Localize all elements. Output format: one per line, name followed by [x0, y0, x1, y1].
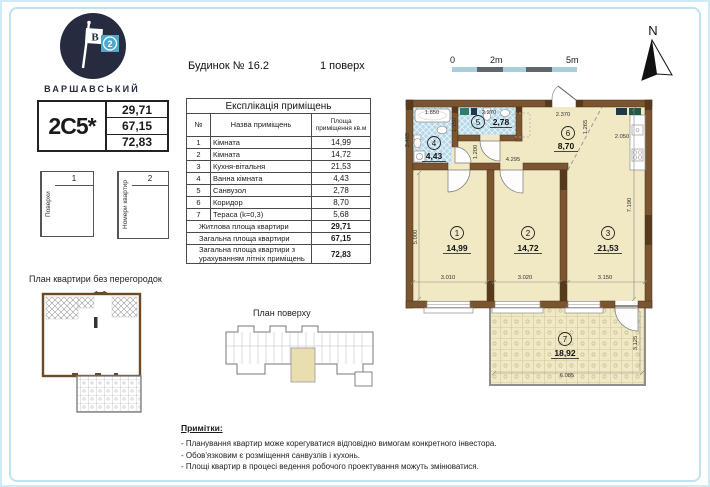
bath-toilet [414, 139, 421, 148]
kitchen-counter [630, 115, 645, 170]
dim-2370: 2.370 [556, 112, 571, 118]
room-6-area: 8,70 [558, 141, 575, 151]
wc-appliance-green [460, 108, 469, 115]
dim-3125: 3.125 [633, 336, 639, 351]
scale-label-5m: 5m [566, 55, 579, 65]
summary-row-total: Загальна площа квартири67,15 [187, 233, 371, 245]
dim-1150: 1.150 [452, 118, 458, 133]
apartment-numbers-card-label: Номери квартир [118, 172, 132, 238]
dim-7190: 7.190 [627, 198, 633, 213]
room-5-number: 5 [476, 118, 481, 127]
apartment-total-with-summer: 72,83 [107, 135, 167, 150]
room-2-area: 14,72 [517, 243, 539, 253]
dim-1200: 1.200 [473, 145, 479, 160]
dim-3010: 3.010 [441, 275, 456, 281]
apartment-numbers-card: Номери квартир 2 [117, 171, 169, 239]
explication-table: Експлікація приміщень № Назва приміщень … [186, 98, 371, 264]
room-7-area: 18,92 [554, 348, 576, 358]
notes-title: Примітки: [181, 423, 601, 433]
kitchen-appliance-green [629, 108, 641, 115]
table-row: 6Коридор8,70 [187, 197, 371, 209]
windows [424, 302, 603, 314]
room-3-area: 21,53 [597, 243, 619, 253]
kitchen-appliance-navy [616, 108, 627, 115]
dim-2050: 2.050 [615, 134, 630, 140]
room-1-number: 1 [455, 229, 460, 238]
apartment-code: 2C5* [39, 102, 107, 150]
brand-name: ВАРШАВСЬКИЙ [34, 84, 150, 94]
room-3-number: 3 [606, 229, 611, 238]
col-header-name: Назва приміщень [211, 114, 312, 137]
apartment-card: 2C5* 29,71 67,15 72,83 [37, 100, 169, 152]
column [94, 317, 98, 328]
apartment-total-area: 67,15 [107, 118, 167, 134]
room-7-number: 7 [563, 335, 568, 344]
table-row: 4Ванна кімната4,43 [187, 173, 371, 185]
dim-6085: 6.085 [560, 373, 575, 379]
wc-sink [501, 110, 510, 117]
table-row: 1Кімната14,99 [187, 137, 371, 149]
room-5-area: 2,78 [493, 117, 510, 127]
dim-1265: 1.265 [583, 120, 589, 135]
dim-5000: 5.000 [413, 230, 419, 245]
scale-bar: 0 2m 5m [448, 55, 588, 72]
dim-3020: 3.020 [518, 275, 533, 281]
terrace-outline [77, 376, 141, 412]
room-6-number: 6 [566, 129, 571, 138]
scale-label-0: 0 [450, 55, 455, 65]
dim-4295: 4.295 [506, 157, 521, 163]
apartment-numbers-card-value: 2 [132, 172, 168, 186]
table-row: 3Кухня-вітальня21,53 [187, 161, 371, 173]
floors-card: Поверхи 1 [40, 171, 94, 237]
scale-bar-rule [452, 67, 577, 72]
table-row: 5Санвузол2,78 [187, 185, 371, 197]
highlighted-apartment [291, 348, 315, 382]
building-title: Будинок № 16.2 [188, 60, 269, 72]
note-item: - Площі квартир в процесі ведення робочо… [181, 461, 601, 473]
wc-appliance-navy [471, 108, 477, 115]
summary-row-total-summer: Загальна площа квартири з урахуванням лі… [187, 245, 371, 264]
dim-1850: 1.850 [425, 110, 440, 116]
logo-number-2: 2 [107, 39, 112, 49]
floor-title: 1 поверх [320, 60, 365, 72]
floor-plan-title: План поверху [253, 308, 311, 318]
brand-logo: B 2 [52, 10, 134, 86]
notes-block: Примітки: - Планування квартир може коре… [181, 423, 601, 473]
table-row: 2Кімната14,72 [187, 149, 371, 161]
floors-card-label: Поверхи [41, 172, 55, 236]
floors-card-value: 1 [55, 172, 93, 186]
col-header-num: № [187, 114, 211, 137]
table-row: 7Тераса (k=0,3)5,68 [187, 209, 371, 221]
entrance-notch [95, 291, 106, 293]
entrance-door-leaf [558, 86, 576, 100]
room-4-area: 4,43 [426, 151, 443, 161]
apartment-living-area: 29,71 [107, 102, 167, 118]
dim-2270: 2.270 [482, 110, 497, 116]
note-item: - Планування квартир може корегуватися в… [181, 438, 601, 450]
entrance-door-arc [552, 86, 558, 100]
washing-machine [414, 151, 425, 162]
north-arrow: N [638, 20, 680, 86]
logo-letter-b: B [91, 32, 99, 44]
room-4-number: 4 [432, 139, 437, 148]
bath-sink [437, 126, 447, 134]
hatch-left [46, 297, 78, 319]
explication-title: Експлікація приміщень [187, 99, 371, 114]
note-item: - Обов'язковим є розміщення санвузлів і … [181, 450, 601, 462]
room-1-area: 14,99 [446, 243, 468, 253]
floor-overview-plan [225, 324, 375, 390]
scale-label-2m: 2m [490, 55, 503, 65]
north-label: N [648, 23, 657, 38]
no-partitions-plan [40, 291, 145, 415]
main-floor-plan: 1.850 2.270 2.370 2.050 4.295 3.010 3.02… [390, 85, 710, 415]
no-partitions-title: План квартири без перегородок [29, 274, 162, 284]
room-2-number: 2 [526, 229, 531, 238]
dim-2465: 2.465 [405, 133, 411, 148]
col-header-area: Площа приміщення кв.м [312, 114, 371, 137]
dim-3150: 3.150 [598, 275, 613, 281]
summary-row-living: Житлова площа квартири29,71 [187, 221, 371, 233]
hatch-right [112, 297, 137, 317]
